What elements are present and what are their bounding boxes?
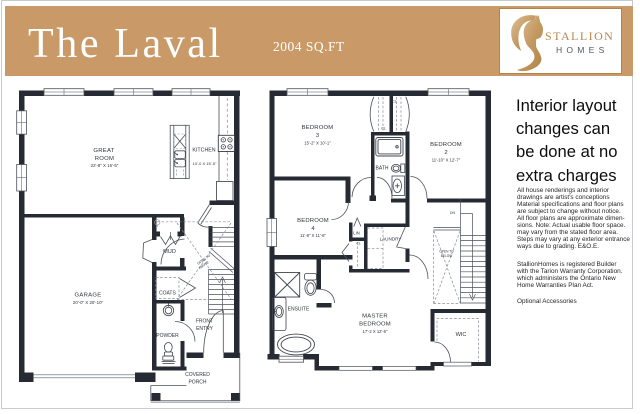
svg-text:BELOW: BELOW [441, 254, 453, 258]
svg-text:11'-8" X 11'-6": 11'-8" X 11'-6" [300, 233, 326, 238]
svg-text:LAUNDRY: LAUNDRY [380, 237, 402, 242]
svg-text:ENSUITE: ENSUITE [288, 307, 310, 313]
svg-text:GARAGE: GARAGE [74, 293, 101, 299]
svg-text:BEDROOM: BEDROOM [302, 125, 334, 131]
svg-text:DN: DN [450, 211, 455, 215]
svg-text:LIN: LIN [353, 231, 360, 236]
svg-text:17'-2 X 12'-6": 17'-2 X 12'-6" [363, 329, 388, 334]
svg-text:10'-0 X 15'-5": 10'-0 X 15'-5" [193, 161, 217, 166]
svg-text:11'-10" X 12'-7": 11'-10" X 12'-7" [432, 158, 461, 163]
svg-text:MASTER: MASTER [362, 314, 388, 320]
svg-text:FRONT: FRONT [196, 319, 213, 325]
svg-text:CL: CL [356, 242, 360, 246]
svg-text:PORCH: PORCH [188, 380, 206, 386]
svg-text:ROOM: ROOM [95, 156, 115, 162]
svg-text:CL: CL [392, 100, 397, 104]
svg-text:22'-8" X 15'-5": 22'-8" X 15'-5" [91, 163, 119, 168]
svg-text:COATS: COATS [159, 291, 177, 297]
svg-text:WIC: WIC [456, 332, 467, 338]
svg-text:OPEN TO: OPEN TO [439, 250, 454, 254]
svg-text:4: 4 [311, 226, 315, 232]
svg-text:KITCHEN: KITCHEN [192, 148, 215, 154]
svg-text:3: 3 [316, 133, 320, 139]
svg-text:15'-2" X 10'-1": 15'-2" X 10'-1" [304, 141, 331, 146]
svg-text:ENTRY: ENTRY [196, 326, 214, 332]
svg-text:GREAT: GREAT [93, 148, 114, 154]
svg-text:COVERED: COVERED [185, 372, 210, 378]
svg-text:BATH: BATH [376, 166, 389, 172]
svg-text:BEDROOM: BEDROOM [297, 218, 329, 224]
svg-text:2: 2 [444, 150, 447, 156]
svg-text:20'-0" X 20'-10": 20'-0" X 20'-10" [73, 300, 104, 305]
svg-text:CL: CL [381, 127, 386, 131]
svg-text:BEDROOM: BEDROOM [359, 322, 391, 328]
svg-text:POWDER: POWDER [156, 333, 179, 339]
svg-text:BEDROOM: BEDROOM [430, 142, 462, 148]
svg-text:MUD: MUD [163, 249, 176, 255]
